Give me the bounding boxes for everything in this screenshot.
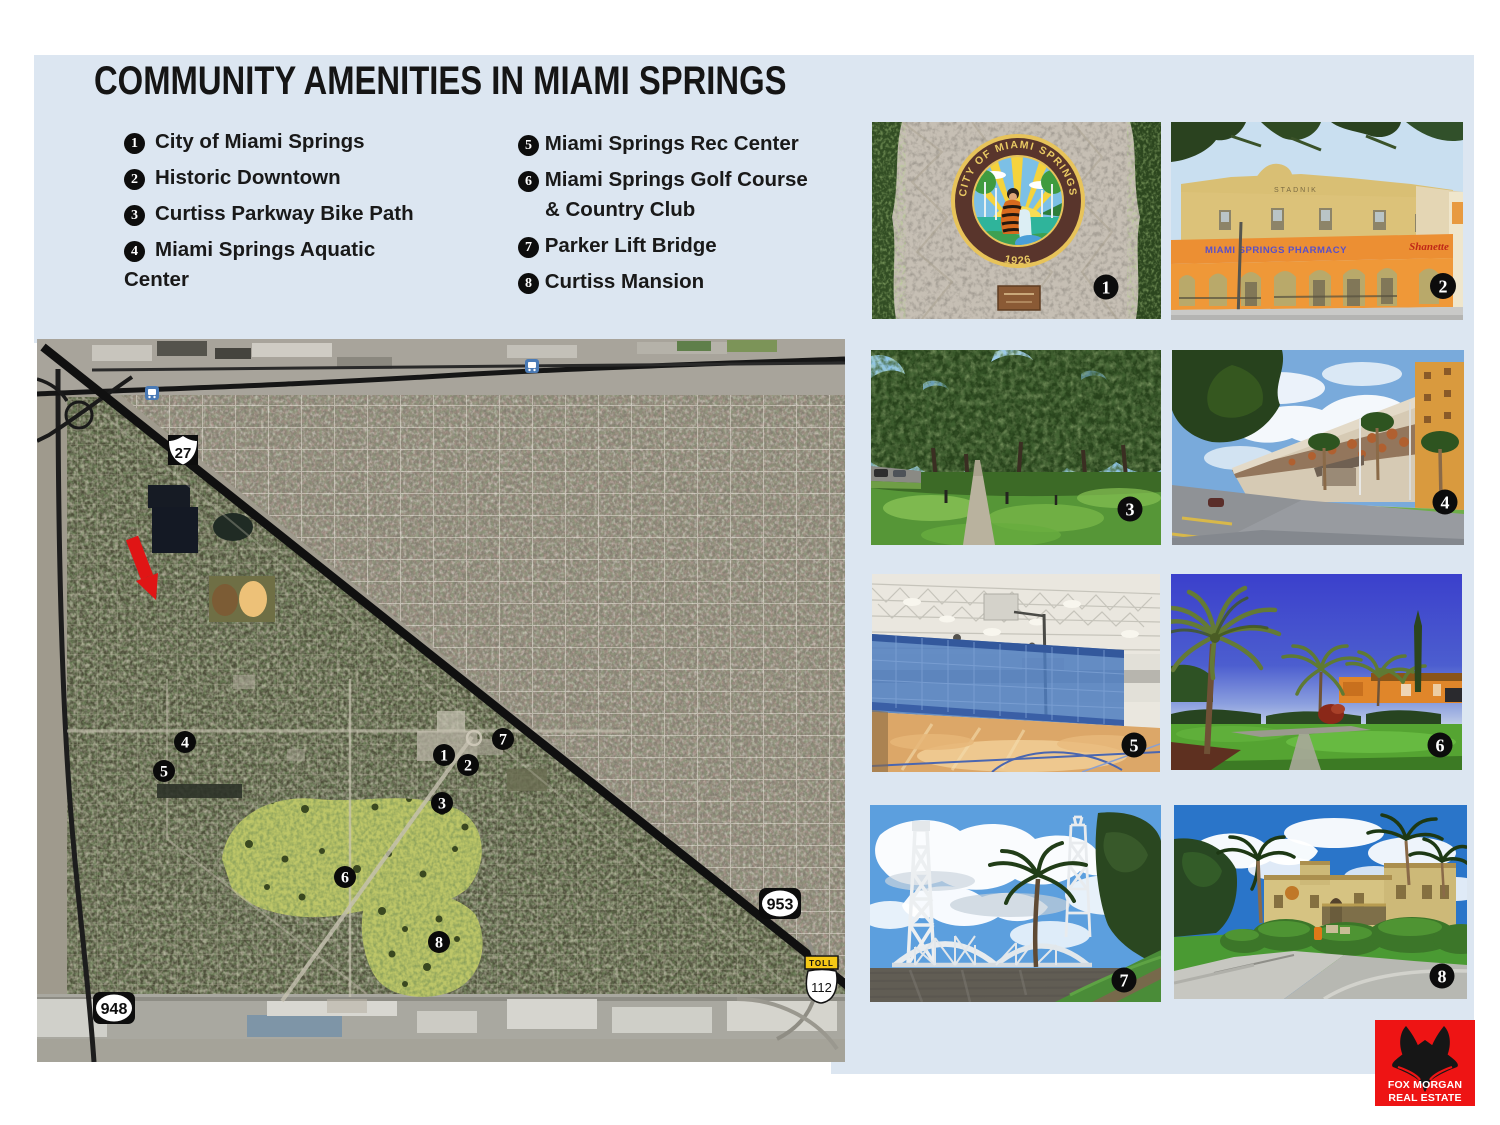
svg-text:3: 3 [1126, 500, 1135, 520]
svg-text:5: 5 [1130, 736, 1139, 756]
svg-text:8: 8 [435, 935, 443, 952]
svg-text:5: 5 [160, 764, 168, 781]
svg-text:2: 2 [1439, 277, 1448, 297]
svg-text:2: 2 [464, 758, 472, 775]
svg-text:1: 1 [1102, 278, 1111, 298]
svg-text:8: 8 [1438, 967, 1447, 987]
svg-text:STADNIK: STADNIK [1274, 187, 1318, 194]
svg-text:TOLL: TOLL [809, 959, 834, 968]
svg-text:4: 4 [1441, 493, 1450, 513]
svg-text:3: 3 [438, 796, 446, 813]
svg-text:4: 4 [181, 735, 189, 752]
svg-text:Shanette: Shanette [1409, 241, 1449, 253]
svg-text:7: 7 [499, 732, 507, 749]
svg-text:MIAMI SPRINGS PHARMACY: MIAMI SPRINGS PHARMACY [1205, 245, 1347, 256]
svg-text:7: 7 [1120, 971, 1129, 991]
svg-text:1: 1 [440, 748, 448, 765]
svg-text:FOX MORGAN: FOX MORGAN [1388, 1079, 1462, 1091]
svg-text:27: 27 [175, 445, 192, 462]
svg-text:948: 948 [101, 1001, 128, 1018]
svg-text:6: 6 [341, 870, 349, 887]
svg-text:953: 953 [767, 897, 794, 914]
svg-text:REAL ESTATE: REAL ESTATE [1388, 1092, 1461, 1104]
svg-text:112: 112 [811, 980, 832, 995]
svg-text:6: 6 [1436, 736, 1445, 756]
